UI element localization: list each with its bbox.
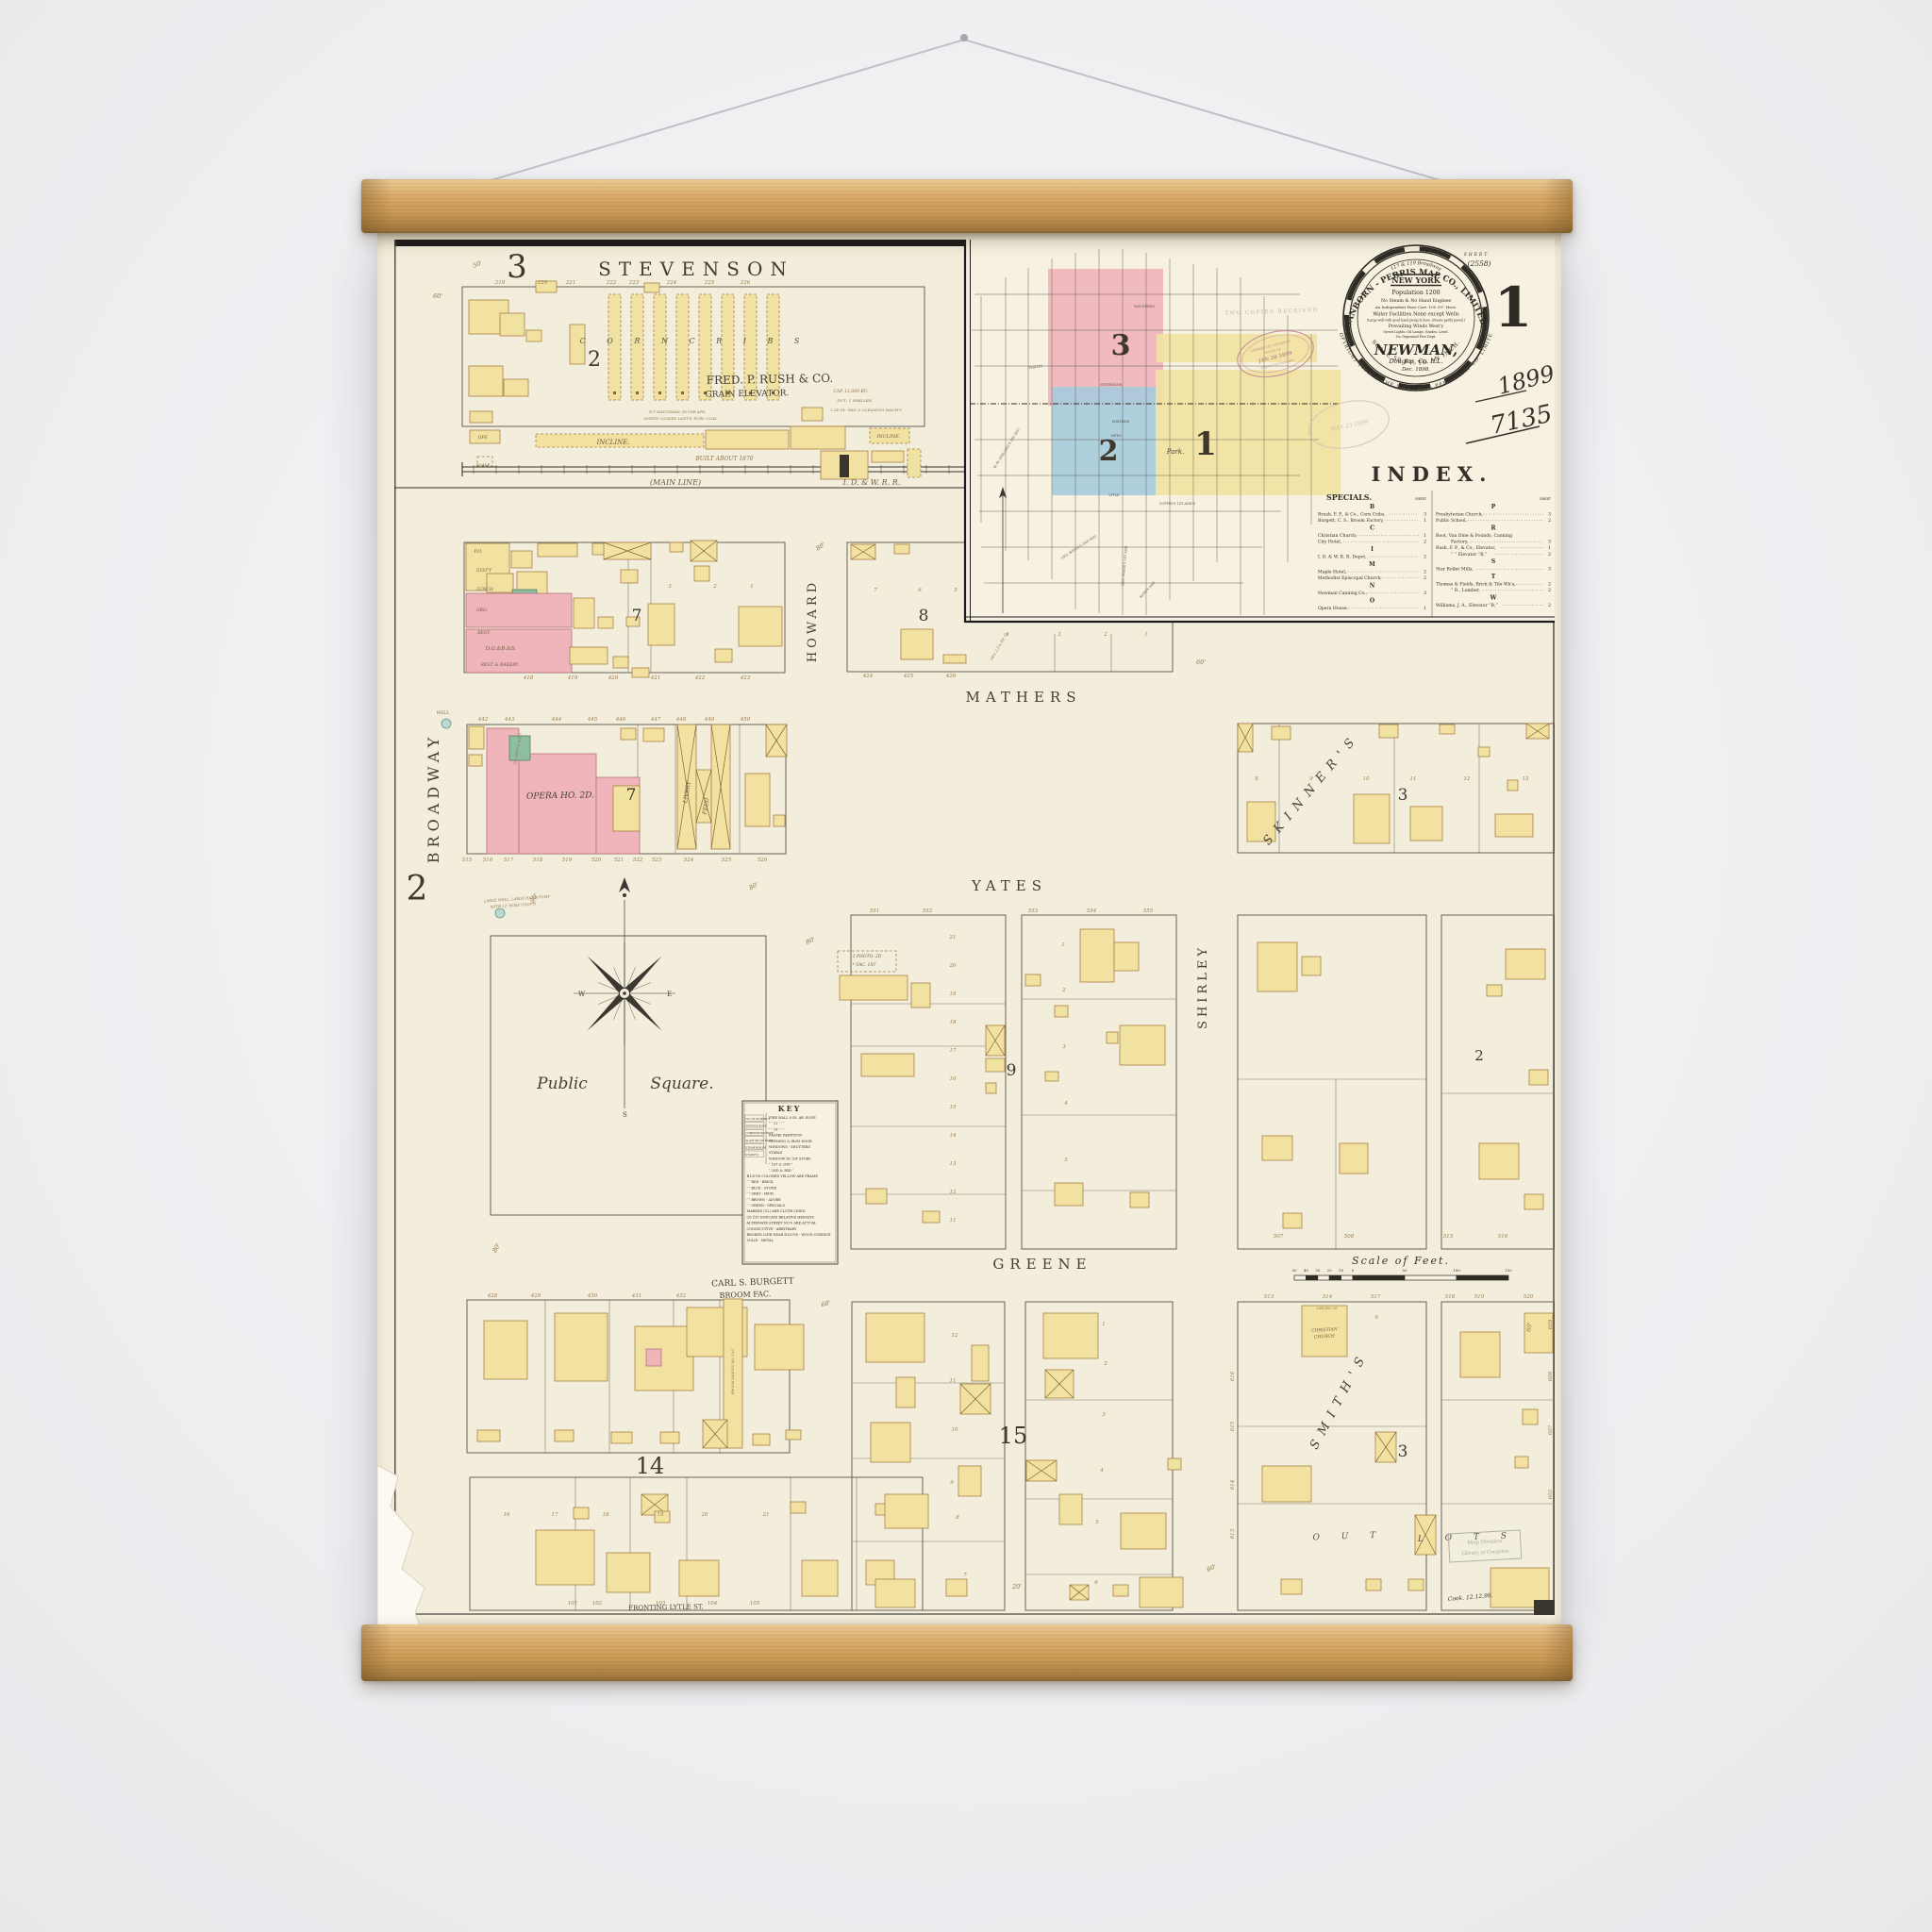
index-section-letter: N [1370, 582, 1375, 589]
inset-street-label: COFFIN'S 1ST ADD'N [1159, 502, 1195, 506]
map-canvas: WES STEVENSONMATHERSYATESGREENEBROADWAYH… [394, 240, 1555, 1615]
map-annotation: * VAC. 1ST [853, 962, 877, 968]
lot-number: 519 [1474, 1294, 1485, 1300]
building [648, 604, 675, 645]
map-annotation: GRO. [476, 608, 488, 613]
building [791, 426, 845, 449]
lot-number: 4 [1005, 632, 1009, 638]
building [644, 283, 659, 292]
lot-number: 428 [487, 1293, 498, 1299]
scale-tick: 0 [1352, 1268, 1355, 1273]
index-entry-name: Methodist Episcopal Church, [1318, 575, 1382, 581]
index-section-letter: B [1370, 504, 1374, 510]
lot-number: 8 [956, 1515, 959, 1521]
lot-number: 11 [950, 1218, 957, 1224]
lot-number: 420 [608, 675, 619, 681]
lot-number: 521 [614, 858, 625, 863]
scale-tick: 40 [1304, 1268, 1309, 1273]
dimension-label: 20' [1011, 1583, 1022, 1591]
north-arrow [619, 877, 630, 892]
building [484, 1321, 527, 1379]
building [1070, 1585, 1089, 1600]
map-annotation: Square. [650, 1074, 713, 1093]
map-annotation: CHURCH [1314, 1333, 1335, 1340]
key-row: OPENING & IRON DOOR [769, 1140, 812, 1143]
index-entry-name: “ ” Elevator “B,” [1451, 551, 1487, 558]
lot-number: 103 [656, 1601, 666, 1607]
index-entry-sheet: 1 [1424, 606, 1426, 611]
building [1460, 1332, 1500, 1377]
key-row: ALTERNATE STREET NO'S ARE ACTUAL [746, 1222, 818, 1225]
index-entry-name: Newman Canning Co., [1318, 591, 1368, 596]
street-label: MATHERS [966, 689, 1082, 706]
map-annotation: CAP. 12,000 BU. [834, 389, 870, 394]
sheet-word: SHEET [1464, 252, 1490, 258]
building [1340, 1143, 1368, 1174]
building [504, 379, 528, 396]
key-left-row: STABLE X [746, 1153, 759, 1157]
lot-number: 1 [750, 584, 754, 590]
key-row: B'LD'GS COLORED YELLOW ARE FRAME [747, 1174, 819, 1178]
dimension-label: 60' [433, 292, 442, 300]
building [1238, 724, 1253, 752]
map-annotation: O U T [1312, 1531, 1385, 1543]
building [1025, 974, 1041, 986]
map-division-line: Map Division [1467, 1539, 1502, 1546]
lot-number: 519 [562, 858, 573, 863]
lot-number: 421 [650, 675, 661, 681]
lot-number: 518 [533, 858, 543, 863]
index-entry-sheet: 1 [1548, 545, 1551, 551]
lot-number: 613 [1230, 1528, 1236, 1539]
block-number: 3 [1398, 1442, 1408, 1461]
dimension-label: 80' [814, 541, 826, 552]
lot-number: 16 [950, 1076, 957, 1082]
building [1043, 1313, 1098, 1358]
map-annotation: LIGHTS: CLOSED LANT'S. FUEL: COAL. [642, 416, 718, 421]
building [1257, 942, 1297, 991]
index-entry-name: Presbyterian Church, [1436, 512, 1483, 518]
block-outline [462, 287, 924, 426]
lot-number: 15 [950, 1105, 957, 1110]
map-annotation: REST. & BAKERY. [480, 662, 520, 668]
lot-number: 445 [587, 717, 598, 723]
dimension-label: 60' [1196, 658, 1206, 666]
index-section-letter: M [1369, 561, 1375, 568]
index-section-letter: T [1491, 574, 1496, 580]
map-annotation: LUNCH [475, 587, 493, 592]
building [1354, 794, 1390, 843]
key-row: FIRE WALL 6 IN. AB. ROOF [769, 1116, 816, 1120]
key-row: ″ ″ 12 ″ ″ ″ [769, 1122, 785, 1125]
poster-hanger-top-rail [361, 179, 1573, 233]
lot-number: 520 [1524, 1294, 1534, 1300]
lot-number: 9 [1374, 1315, 1378, 1321]
building [715, 649, 732, 662]
building [500, 313, 525, 336]
lot-number: 219 [494, 280, 506, 286]
building [1366, 1579, 1381, 1591]
dimension-label: 80' [805, 935, 817, 946]
lot-number: 8 [1255, 776, 1258, 782]
building [511, 551, 532, 568]
map-annotation: Public [536, 1074, 588, 1093]
lot-number: 614 [1230, 1479, 1236, 1490]
index-specials-header: SPECIALS. [1326, 492, 1372, 502]
building [1262, 1466, 1311, 1502]
well [495, 908, 505, 918]
lot-number: 449 [704, 717, 715, 723]
corn-crib [631, 294, 643, 400]
index-entry-sheet: 3 [1424, 512, 1426, 518]
key-left-row: SLATE OR TIN ROOF [746, 1139, 774, 1142]
building [791, 1502, 806, 1513]
street-label: SHIRLEY [1196, 944, 1210, 1029]
lot-number: 21 [762, 1512, 770, 1518]
dimension-label: 80' [491, 1241, 502, 1254]
building [1026, 1460, 1057, 1481]
building [1080, 929, 1114, 982]
lot-number: 432 [675, 1293, 687, 1299]
scale-tick: 100 [1453, 1268, 1460, 1273]
index-entry-sheet: 2 [1548, 603, 1551, 608]
building [745, 774, 770, 826]
index-entry-name: Factory, [1451, 540, 1469, 545]
building [536, 1530, 594, 1585]
index-section-letter: C [1370, 525, 1374, 532]
building [1120, 1025, 1165, 1065]
lot-number: 522 [633, 858, 643, 863]
lot-number: 515 [462, 858, 473, 863]
dimension-label: 60' [1206, 1562, 1218, 1574]
index-entry-name: Rush, F. P., & Co., Elevator, [1436, 545, 1496, 551]
building [477, 1430, 500, 1441]
lot-number: 226 [740, 280, 751, 286]
stamp-info-line: No Steam & No Hand Engines [1381, 298, 1452, 304]
scale-tick: 30 [1315, 1268, 1321, 1273]
index-section-letter: W [1490, 595, 1497, 602]
block-number: 15 [999, 1423, 1028, 1449]
building [866, 1313, 924, 1362]
building [604, 542, 651, 559]
lot-number: 222 [606, 280, 617, 286]
index-section-letter: P [1491, 504, 1496, 510]
key-row: ″ ″ RED - BRICK [747, 1180, 774, 1184]
key-row: STABLE [769, 1151, 783, 1155]
lot-number: 10 [952, 1427, 958, 1433]
building [943, 655, 966, 663]
lot-number: 17 [552, 1512, 558, 1518]
lot-number: 12 [1464, 776, 1471, 782]
key-row: ″ ″ 18 ″ ″ ″ [769, 1127, 785, 1131]
key-row: ″ ″ GREY - IRON [747, 1192, 774, 1196]
lot-number: 607 [1548, 1424, 1554, 1435]
index-entry-name: Maple Hotel, [1318, 569, 1347, 575]
lot-number: 220 [537, 280, 548, 286]
key-row: ″ ″ BROWN - ADOBE [747, 1198, 782, 1202]
lot-number: 602 [1548, 1489, 1554, 1499]
lot-number: 424 [862, 674, 874, 679]
index-entry-sheet: 2 [1548, 518, 1551, 524]
building [911, 983, 930, 1008]
building [1506, 949, 1545, 979]
building [774, 815, 785, 826]
index-entry-name: “ R., Lumber, [1451, 587, 1480, 593]
building [691, 541, 717, 561]
building [1375, 1432, 1396, 1462]
inset-street-label: YATES [1109, 434, 1122, 438]
building [1408, 1579, 1424, 1591]
torn-corner [377, 1439, 462, 1627]
lot-number: 101 [568, 1601, 578, 1607]
lot-number: 516 [483, 858, 493, 863]
lot-number: 221 [565, 280, 576, 286]
lot-number: 6 [1094, 1580, 1098, 1586]
building [1529, 1070, 1548, 1085]
lot-number: 523 [652, 858, 662, 863]
lot-number: 515 [1443, 1234, 1454, 1240]
inset-street-label: MATHERS [1112, 420, 1130, 424]
building [1107, 1032, 1118, 1043]
map-annotation: OFF. [478, 435, 489, 441]
block-number: 2 [1474, 1047, 1484, 1064]
lot-number: 224 [666, 280, 677, 286]
building [1113, 1585, 1128, 1596]
lot-number: 18 [950, 1020, 957, 1025]
key-row: CONSECUTIVE - ARBITRARY [747, 1227, 798, 1231]
building [519, 754, 596, 854]
lot-number: 17 [950, 1048, 957, 1054]
map-annotation: INCLINE. [595, 439, 629, 446]
building [574, 1507, 589, 1519]
building [885, 1494, 928, 1528]
building [1114, 942, 1139, 971]
index-section-letter: S [1491, 558, 1495, 565]
building [555, 1313, 608, 1381]
key-row: ″ ″ GREEN - SPECIALS [747, 1204, 786, 1207]
inset-street-label: STEVENSON [1100, 383, 1122, 387]
building [1515, 1457, 1528, 1468]
lot-number: 19 [658, 1512, 664, 1518]
building [1410, 807, 1442, 841]
lot-number: 431 [631, 1293, 642, 1299]
lot-number: 426 [945, 674, 957, 679]
lot-number: 1 [1144, 632, 1148, 638]
building [1507, 780, 1518, 791]
stamp-info-line: Prevailing Winds West'y [1389, 324, 1444, 329]
building [1495, 814, 1533, 837]
lot-number: 3 [668, 584, 672, 590]
building [960, 1384, 991, 1414]
index-title: INDEX. [1372, 462, 1493, 486]
index-entry-sheet: 2 [1424, 575, 1426, 581]
index-entry-sheet: 2 [1548, 588, 1551, 593]
block-number: 3 [507, 248, 527, 286]
index-entry-name: Williams, J. A., Elevator “B,” [1436, 602, 1498, 608]
building [1526, 724, 1549, 739]
lot-number: 517 [504, 858, 514, 863]
corn-crib [608, 294, 621, 400]
building [1524, 1313, 1553, 1353]
lot-number: 508 [1344, 1234, 1355, 1240]
building [469, 726, 484, 749]
lot-number: 507 [1274, 1234, 1284, 1240]
inset-street-label: LYTLE [1108, 493, 1120, 497]
block-number: 9 [1007, 1061, 1017, 1080]
key-row: (3) (18) INDICATE RELATIVE HEIGHTS [747, 1215, 815, 1219]
building [840, 455, 849, 477]
building [1121, 1513, 1166, 1549]
building [901, 629, 933, 659]
map-annotation: C O R N C R I B S [580, 337, 809, 345]
key-row: ″ 2ND & 3RD ″ [769, 1169, 794, 1173]
inset-sheet-area [1156, 370, 1341, 495]
building [1281, 1579, 1302, 1594]
lot-number: 525 [722, 858, 732, 863]
index-entry-sheet: 3 [1548, 512, 1551, 518]
map-division-line: Library of Congress [1461, 1549, 1509, 1557]
building [840, 975, 908, 1000]
stamp-city: NEW YORK [1391, 275, 1441, 285]
index-entry-name: City Hotel, [1318, 540, 1342, 545]
building [1055, 1183, 1083, 1206]
building [861, 1054, 914, 1076]
building [469, 755, 482, 766]
building [802, 1560, 838, 1596]
map-annotation: INCLINE. [875, 434, 900, 440]
key-row: WINDOW IN 1ST STORY [769, 1157, 811, 1160]
lot-number: 552 [923, 908, 933, 914]
building [646, 1349, 661, 1366]
index-entry-name: Burgett, C. S., Broom Factory, [1318, 518, 1384, 524]
building [1283, 1213, 1302, 1228]
lot-number: 609 [1548, 1319, 1554, 1329]
street-label: YATES [971, 877, 1047, 894]
index-entry-name: Star Roller Mills, [1436, 567, 1474, 573]
index-entry-sheet: 2 [1424, 540, 1426, 545]
building [1168, 1458, 1181, 1470]
building [1302, 957, 1321, 975]
map-annotation: (MAIN LINE) [650, 478, 701, 487]
building [694, 566, 709, 581]
building [875, 1579, 915, 1607]
building [871, 1423, 910, 1462]
lot-number: 442 [477, 717, 489, 723]
building [946, 1579, 967, 1596]
map-annotation: REST. [476, 630, 491, 636]
building [706, 430, 789, 449]
lot-number: 5 [1064, 1158, 1068, 1163]
building [670, 542, 683, 552]
building [1272, 726, 1291, 740]
lot-number: 12 [952, 1333, 958, 1339]
map-annotation: BUILT ABOUT 1870 [694, 456, 753, 462]
lot-number: 18 [603, 1512, 609, 1518]
street-label: BROADWAY [425, 733, 442, 863]
building [1534, 1600, 1555, 1615]
building [598, 617, 613, 628]
lot-number: 9 [1309, 776, 1313, 782]
building [802, 408, 823, 421]
scale-tick: 20 [1327, 1268, 1333, 1273]
building [660, 1432, 679, 1443]
map-annotation: CEILING 20' [1317, 1307, 1339, 1310]
stamp-info-line: Water Facilities None except Wells [1373, 312, 1459, 318]
key-left-row: COMPOSITION ROOF [746, 1131, 774, 1135]
inset-street-label: VAN DEREN [1133, 305, 1155, 308]
index-entry-name: Opera House, [1318, 606, 1349, 611]
building [753, 1434, 770, 1445]
lot-number: 13 [1523, 776, 1529, 782]
building [1059, 1494, 1082, 1524]
dimension-label: 60' [821, 1299, 832, 1308]
lot-number: 608 [1548, 1371, 1554, 1381]
lot-number: 1 [1102, 1322, 1106, 1327]
map-annotation: STAT'Y [476, 568, 492, 574]
building [470, 411, 492, 423]
index-entry-name: Root, Van Dine & Pounds, Canning [1436, 533, 1512, 539]
map-annotation: FRED. P. RUSH & CO. [707, 372, 834, 387]
building [986, 1083, 996, 1093]
building [972, 1345, 989, 1381]
building [872, 451, 904, 462]
stamp-date: Dec. 1898. [1401, 367, 1430, 373]
sheet-number: 1 [1494, 275, 1532, 340]
index-entry-name: Thomas & Fields, Brick & Tile Wk's, [1436, 582, 1516, 588]
lot-number: 615 [1230, 1421, 1236, 1431]
stamp-info-line: Street Lights: Oil Lamps. Grades: Level. [1383, 330, 1448, 334]
lot-number: 16 [504, 1512, 510, 1518]
map-annotation: WELL. [436, 710, 451, 716]
lot-number: 447 [650, 717, 661, 723]
building [538, 543, 577, 557]
wall-hook [960, 34, 968, 42]
building [611, 1432, 632, 1443]
lot-number: 3 [1062, 1044, 1066, 1050]
lot-number: 448 [675, 717, 687, 723]
key-left-row: SHINGLE ROOF [746, 1124, 767, 1128]
lot-number: 19 [950, 991, 957, 997]
addition-script-label: SMITH'S [1307, 1349, 1372, 1452]
building [632, 668, 649, 677]
building [1055, 1006, 1068, 1017]
building [621, 728, 636, 740]
lot-number: 520 [591, 858, 602, 863]
building [986, 1058, 1005, 1072]
lot-number: 517 [1371, 1294, 1381, 1300]
lot-number: 450 [740, 717, 751, 723]
inset-park-label: Park. [1166, 448, 1184, 456]
scene: WES STEVENSONMATHERSYATESGREENEBROADWAYH… [0, 0, 1932, 1932]
lot-number: 7 [874, 588, 877, 593]
lot-number: 21 [949, 935, 957, 941]
index-entry-sheet: 2 [1548, 582, 1551, 588]
building [1045, 1370, 1074, 1398]
lot-number: 3 [1102, 1412, 1106, 1418]
key-row: FRAME PARTITION [769, 1134, 802, 1138]
building [643, 728, 664, 741]
lot-number: 14 [950, 1133, 957, 1139]
key-legend: KEY FIRE WALL 6 IN. AB. ROOF″ ″ 12 ″ ″ ″… [742, 1101, 838, 1264]
lot-number: 513 [1264, 1294, 1274, 1300]
inset-sheet-number: 1 [1194, 425, 1217, 463]
scale-tick: 150 [1505, 1268, 1512, 1273]
scale-bar: Scale of Feet. 5040302010050100150 [1291, 1255, 1512, 1280]
lot-number: 7 [963, 1573, 967, 1578]
map-annotation: P.O. [473, 549, 483, 555]
key-row: MARKED (CL) ARE CLOTH LINED [747, 1209, 806, 1213]
compass-east: E [667, 991, 672, 998]
